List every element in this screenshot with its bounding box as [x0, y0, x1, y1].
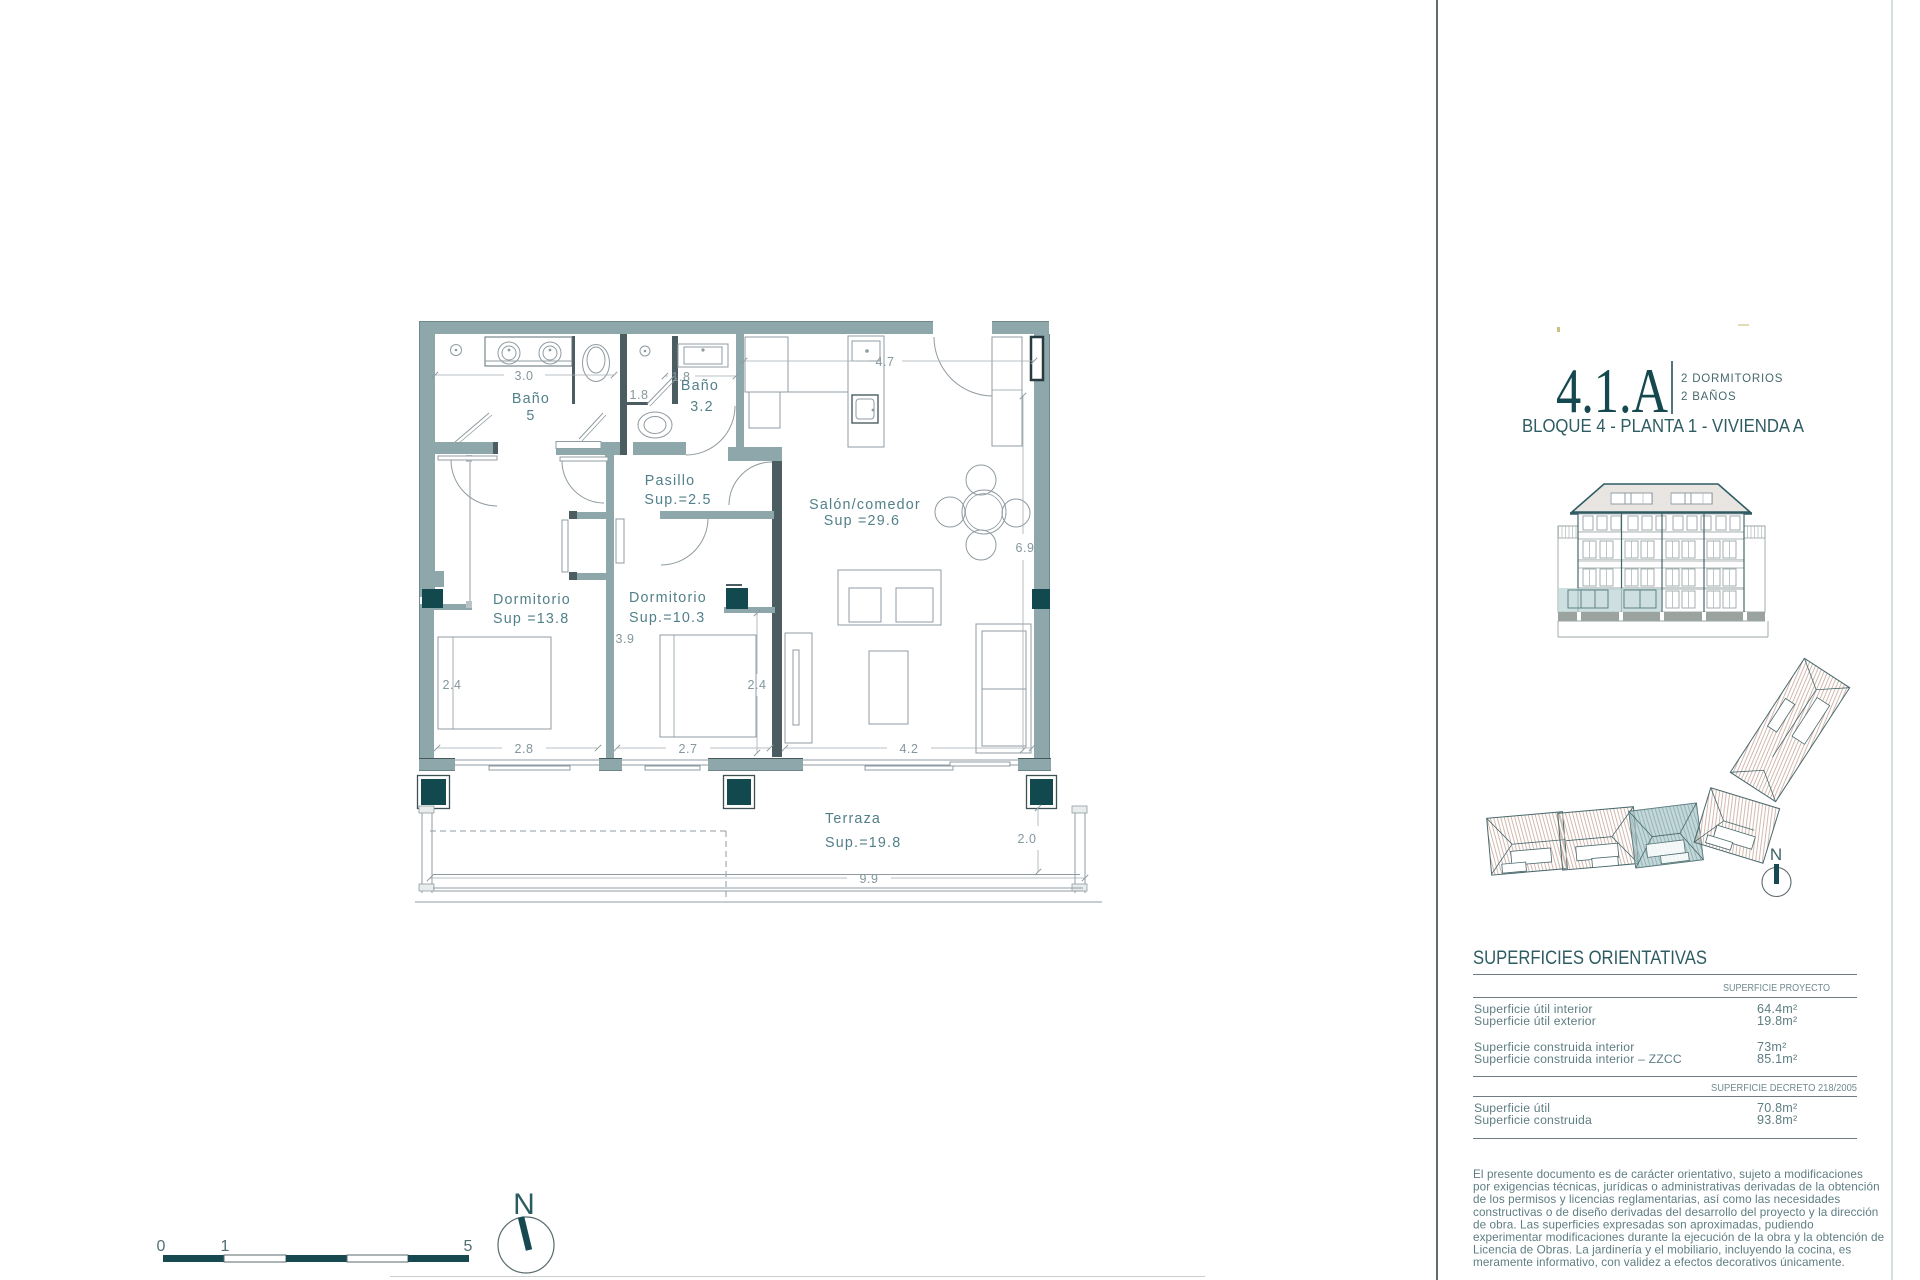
svg-text:N: N — [1770, 845, 1782, 864]
svg-text:Salón/comedor: Salón/comedor — [809, 497, 921, 513]
svg-text:constructivas o de diseño deri: constructivas o de diseño derivadas del … — [1473, 1206, 1878, 1219]
svg-text:de los permisos y licencias re: de los permisos y licencias reglamentari… — [1473, 1193, 1840, 1206]
svg-text:Sup =29.6: Sup =29.6 — [824, 513, 900, 529]
svg-text:85.1m²: 85.1m² — [1757, 1052, 1797, 1066]
svg-text:2.0: 2.0 — [1018, 832, 1037, 846]
svg-text:4.2: 4.2 — [900, 742, 919, 756]
svg-text:SUPERFICIE DECRETO 218/2005: SUPERFICIE DECRETO 218/2005 — [1711, 1082, 1857, 1094]
svg-text:2 DORMITORIOS: 2 DORMITORIOS — [1681, 373, 1783, 385]
svg-text:0: 0 — [157, 1238, 166, 1255]
svg-text:El presente documento es de ca: El presente documento es de carácter ori… — [1473, 1168, 1863, 1181]
svg-text:9.9: 9.9 — [860, 872, 879, 886]
svg-text:2 BAÑOS: 2 BAÑOS — [1681, 390, 1736, 403]
svg-text:3.0: 3.0 — [515, 369, 534, 383]
svg-text:2.7: 2.7 — [679, 742, 698, 756]
svg-text:Dormitorio: Dormitorio — [629, 590, 707, 606]
svg-text:Superficie útil exterior: Superficie útil exterior — [1474, 1014, 1596, 1028]
svg-text:SUPERFICIES ORIENTATIVAS: SUPERFICIES ORIENTATIVAS — [1473, 948, 1707, 969]
svg-text:3.2: 3.2 — [690, 399, 713, 415]
svg-text:meramente informativo, con val: meramente informativo, con validez a efe… — [1473, 1256, 1845, 1269]
svg-text:19.8m²: 19.8m² — [1757, 1014, 1797, 1028]
svg-text:experimentar modificaciones du: experimentar modificaciones durante la e… — [1473, 1231, 1884, 1244]
svg-text:BLOQUE 4 - PLANTA 1 - VIVIENDA: BLOQUE 4 - PLANTA 1 - VIVIENDA A — [1522, 416, 1804, 436]
svg-text:93.8m²: 93.8m² — [1757, 1113, 1797, 1127]
svg-text:4.7: 4.7 — [876, 355, 895, 369]
svg-text:2.4: 2.4 — [748, 678, 767, 692]
svg-text:Pasillo: Pasillo — [645, 473, 696, 489]
svg-text:Dormitorio: Dormitorio — [493, 592, 571, 608]
svg-text:SUPERFICIE PROYECTO: SUPERFICIE PROYECTO — [1723, 982, 1830, 994]
svg-text:Terraza: Terraza — [825, 811, 881, 827]
svg-text:1.8: 1.8 — [630, 388, 649, 402]
svg-text:Sup.=2.5: Sup.=2.5 — [644, 492, 711, 508]
svg-text:Licencia de Obras. La jardiner: Licencia de Obras. La jardinería y el mo… — [1473, 1244, 1851, 1257]
svg-text:Superficie construida interior: Superficie construida interior – ZZCC — [1474, 1052, 1682, 1066]
svg-text:Sup =13.8: Sup =13.8 — [493, 611, 569, 627]
svg-text:1: 1 — [221, 1238, 230, 1255]
svg-text:2.8: 2.8 — [515, 742, 534, 756]
svg-text:de obra. Las superficies expre: de obra. Las superficies expresadas son … — [1473, 1218, 1814, 1231]
svg-text:N: N — [513, 1188, 535, 1221]
svg-text:5: 5 — [464, 1238, 473, 1255]
svg-text:Baño: Baño — [512, 391, 550, 407]
svg-text:6.9: 6.9 — [1016, 541, 1035, 555]
svg-text:3.9: 3.9 — [616, 632, 635, 646]
svg-text:por exigencias técnicas, juríd: por exigencias técnicas, jurídicas o adm… — [1473, 1181, 1880, 1194]
svg-text:Baño: Baño — [681, 378, 719, 394]
svg-text:Sup.=10.3: Sup.=10.3 — [629, 610, 705, 626]
svg-text:Sup.=19.8: Sup.=19.8 — [825, 835, 901, 851]
svg-text:5: 5 — [526, 408, 535, 424]
svg-text:Superficie construida: Superficie construida — [1474, 1113, 1592, 1127]
svg-text:2.4: 2.4 — [443, 678, 462, 692]
